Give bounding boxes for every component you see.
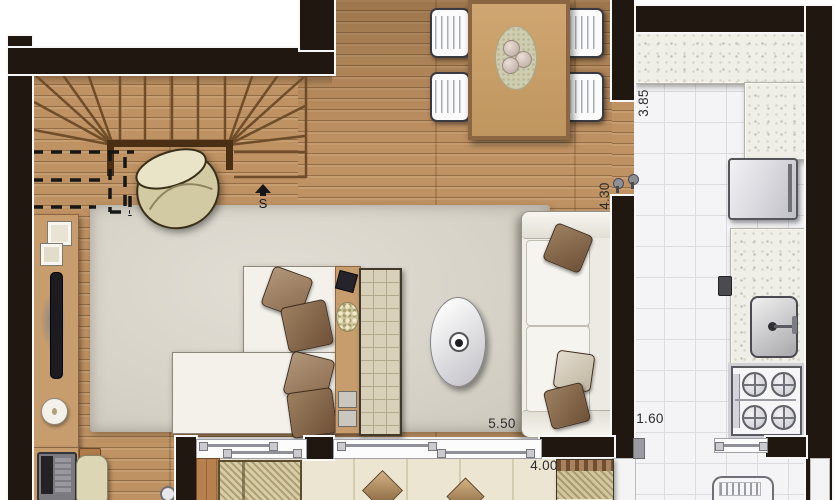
wall-top-left-vertical (300, 0, 334, 50)
wall-bottom-right-segment (540, 437, 614, 457)
sofa-back (588, 238, 615, 410)
balcony-wood-panel (196, 458, 220, 500)
door-knob (160, 486, 176, 500)
wall-divider-top (612, 0, 634, 100)
balcony-service-opening (612, 458, 636, 500)
balcony-lounger (218, 460, 302, 500)
door-rail (442, 451, 530, 454)
sink-faucet-handle (792, 316, 797, 334)
door-rail-end (337, 442, 346, 451)
washing-machine (712, 476, 774, 500)
console-plant (336, 302, 359, 332)
door-rail-end (293, 449, 302, 458)
sliding-door (333, 439, 542, 459)
refrigerator-hinge (788, 164, 792, 212)
coffee-table-ring (449, 332, 469, 352)
door-handle-stem (631, 182, 634, 189)
dining-chair (430, 8, 470, 58)
laptop-screen (41, 456, 53, 494)
refrigerator (728, 158, 798, 220)
door-handle-stem (616, 186, 619, 193)
chaise-pillow (280, 299, 335, 354)
door-rail-end (526, 449, 535, 458)
clock-center (52, 408, 57, 415)
bench-cushion (557, 471, 613, 499)
kitchen-door-post (633, 438, 645, 459)
kitchen-counter-right-upper (744, 82, 808, 160)
console-tray (338, 410, 357, 427)
armchair (128, 138, 226, 236)
kitchen-window (714, 438, 768, 453)
door-rail (342, 444, 432, 447)
wall-top-left-horizontal (8, 48, 334, 74)
stove-burner (771, 372, 796, 397)
wall-left (8, 36, 32, 500)
dining-chair (564, 8, 604, 58)
tufted-bench (359, 268, 402, 436)
wall-tv (50, 272, 63, 379)
counter-switch (718, 276, 732, 296)
door-rail (227, 451, 297, 454)
stove (731, 366, 802, 436)
wall-balcony-pillar-left (176, 437, 196, 500)
door-rail-end (223, 449, 232, 458)
laptop-keyboard (55, 456, 71, 494)
stove-divider (735, 399, 796, 401)
door-rail-end (199, 442, 208, 451)
exterior-notch (0, 0, 298, 48)
washing-machine-panel (719, 482, 761, 496)
stove-control-strip (733, 374, 740, 428)
stairs-up-label: S (255, 196, 271, 211)
console-tray (338, 391, 357, 408)
window-opening-right (810, 458, 830, 500)
laptop (37, 452, 77, 500)
coffee-table (430, 297, 486, 387)
dimension-label-kitchen-depth: 3.85 (636, 81, 652, 125)
picture-frame (40, 243, 63, 266)
door-rail (203, 444, 273, 447)
window-rail (719, 444, 763, 447)
sliding-door (196, 439, 307, 459)
dimension-label-living-depth: 4.30 (597, 174, 613, 218)
door-rail-end (437, 449, 446, 458)
dining-chair (564, 72, 604, 122)
dimension-label-balcony-width: 4.00 (522, 458, 566, 474)
kitchen-counter-top (634, 30, 808, 84)
lounger-divider (242, 462, 245, 500)
door-rail-end (269, 442, 278, 451)
dining-chair (430, 72, 470, 122)
coffee-table-dot (455, 339, 463, 347)
stove-burner (742, 405, 767, 430)
door-rail-end (428, 442, 437, 451)
chaise-pillow (286, 387, 338, 439)
dimension-label-kitchen-width: 1.60 (628, 411, 672, 427)
clock (41, 398, 68, 425)
wall-kitchen-bottom-corner (766, 437, 806, 457)
stairs-up-icon (255, 184, 271, 196)
centerpiece-ball (502, 57, 519, 74)
stove-burner (742, 372, 767, 397)
sofa (521, 211, 616, 437)
floor-plan: S (0, 0, 840, 500)
stove-burner (771, 405, 796, 430)
desk-chair (76, 455, 108, 500)
window-rail-end (715, 442, 724, 451)
sink-faucet (774, 325, 794, 328)
dimension-label-living-width: 5.50 (480, 416, 524, 432)
wall-right (806, 6, 832, 500)
wall-kitchen-top (616, 6, 832, 32)
wall-balcony-pillar-mid (305, 437, 333, 459)
window-rail-end (759, 442, 768, 451)
